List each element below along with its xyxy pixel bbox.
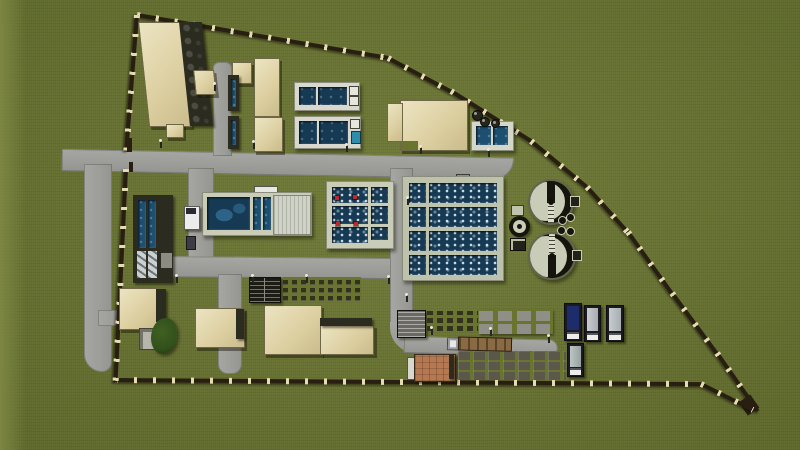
trailer-body	[570, 346, 581, 367]
fence-east-1	[586, 186, 630, 234]
semi-trailer-silver-2	[606, 305, 624, 342]
long-tank-channel-1	[253, 197, 261, 230]
basin1-cell	[371, 187, 388, 203]
truck-cab	[609, 333, 621, 340]
manhole	[566, 227, 575, 236]
street-lamp	[407, 198, 409, 205]
admin-building-group	[138, 22, 213, 126]
aeration-basin-2	[402, 176, 504, 281]
small-circular-tank	[509, 216, 530, 237]
white-van	[184, 206, 200, 230]
street-lamp	[214, 84, 216, 91]
planter-bed-grid-west	[283, 277, 361, 301]
clarifier-1-outlet-box	[570, 196, 580, 207]
road-outer-south	[84, 164, 112, 372]
basin2-cell	[409, 255, 426, 275]
fence-east-3	[670, 292, 718, 355]
long-sedimentation-tank	[202, 192, 312, 236]
fence-east-2	[626, 231, 673, 294]
trailer-body	[567, 306, 579, 330]
tank-pair-1-equipment-b	[349, 96, 359, 106]
pump-unit-2	[480, 117, 490, 127]
basin1-cell	[332, 187, 368, 203]
street-lamp	[488, 150, 490, 157]
basin2-cell	[409, 207, 426, 227]
gate-post-south	[129, 162, 133, 172]
long-tank-channel-2	[263, 197, 271, 230]
grit-chamber-2	[148, 251, 157, 278]
tank-pair-1-cell-b	[318, 87, 347, 105]
pump-unit-3	[491, 119, 500, 128]
basin1-marker	[335, 196, 339, 200]
blower-building-west-wing	[387, 103, 403, 142]
basin2-cell	[429, 183, 497, 203]
channel-tank-1-water	[231, 79, 236, 107]
grit-chamber-1	[137, 251, 146, 278]
basin1-cell	[332, 227, 368, 243]
street-lamp	[388, 277, 390, 284]
street-lamp	[431, 328, 433, 335]
basin1-marker	[354, 222, 358, 226]
garage-dark-edge	[236, 309, 244, 339]
utility-building-3	[254, 117, 283, 152]
street-lamp	[406, 295, 408, 302]
basin1-cell	[371, 206, 388, 224]
truck-cab	[567, 332, 579, 339]
basin2-cell	[409, 183, 426, 203]
street-lamp	[420, 147, 422, 154]
basin2-cell	[409, 231, 426, 251]
basin1-marker	[353, 195, 357, 199]
street-lamp	[253, 142, 255, 149]
trailer-body	[609, 308, 621, 331]
basin2-cell	[429, 207, 497, 227]
street-lamp	[306, 276, 308, 283]
channel-tank-2-water	[231, 120, 236, 145]
pump-tank-cell-a	[476, 126, 491, 145]
semi-trailer-silver-3	[567, 343, 584, 377]
truck-cab	[570, 368, 581, 375]
long-tank-basin	[207, 197, 250, 230]
small-circular-tank-hub	[517, 224, 522, 229]
street-lamp	[176, 276, 178, 283]
sludge-building-west	[264, 305, 322, 355]
semi-trailer-silver-1	[584, 305, 601, 342]
tank-pair-2-small-cell	[351, 131, 361, 144]
clarifier-2-arm	[548, 255, 556, 280]
semi-trailer-navy	[564, 303, 582, 341]
clarifier-aux-box-2	[510, 238, 526, 251]
utility-building-2	[254, 58, 280, 117]
fence-west-south	[114, 169, 128, 383]
tank-pair-1-equipment-a	[349, 86, 359, 96]
clarifier-1-hub	[548, 199, 554, 205]
basin1-cell	[371, 227, 388, 240]
log-truck-bed	[458, 336, 512, 351]
blower-building-notch	[401, 141, 418, 150]
manhole	[566, 213, 575, 222]
sludge-building-east	[320, 325, 374, 355]
truck-cab	[587, 333, 598, 340]
inlet-equipment-box	[160, 252, 173, 269]
planter-bed-grid-east	[427, 311, 478, 331]
sludge-drying-bed-grid	[458, 351, 566, 380]
workshop-building	[119, 288, 158, 330]
tank-pair-1-cell-a	[299, 87, 316, 105]
tree	[151, 318, 177, 354]
louvered-unit-gray	[397, 310, 426, 338]
clarifier-aux-box-1	[511, 205, 524, 216]
gate-post-north	[127, 138, 132, 152]
street-lamp	[346, 145, 348, 152]
van-windshield	[186, 208, 196, 214]
inlet-channel-1	[138, 200, 146, 248]
street-lamp	[252, 276, 254, 283]
tank-pair-1	[294, 82, 360, 111]
street-lamp	[490, 329, 492, 336]
brick-outbuilding-edge	[449, 355, 454, 379]
tank-pair-2	[294, 116, 361, 149]
fence-north-2	[387, 56, 452, 93]
dark-car	[186, 236, 196, 250]
street-lamp	[548, 336, 550, 343]
tank-pair-2-cell-b	[319, 121, 348, 144]
tank-pair-2-equipment	[350, 119, 360, 129]
basin2-cell	[429, 231, 497, 251]
clarifier-2-outlet-box	[572, 250, 582, 261]
sludge-building-roof-band	[320, 318, 372, 326]
basin2-cell	[429, 255, 497, 275]
site-render	[0, 0, 800, 450]
small-south-annex	[166, 124, 184, 138]
trailer-body	[587, 308, 598, 331]
grass-light-edge	[0, 0, 26, 450]
inlet-works	[133, 195, 173, 283]
aeration-basin-1	[326, 181, 394, 249]
manhole	[557, 226, 566, 235]
clarifier-2	[528, 232, 576, 280]
tank-pair-2-cell-a	[299, 121, 317, 144]
fence-west-north	[124, 15, 139, 152]
long-tank-covered-section	[273, 195, 311, 235]
flatbed-log-truck	[447, 336, 511, 351]
street-lamp	[160, 141, 162, 148]
pump-tank-cell-b	[493, 126, 508, 145]
basin1-marker	[336, 222, 340, 226]
inlet-channel-2	[148, 200, 156, 248]
clarifier-2-hub	[549, 253, 555, 259]
road-middle	[148, 256, 406, 279]
